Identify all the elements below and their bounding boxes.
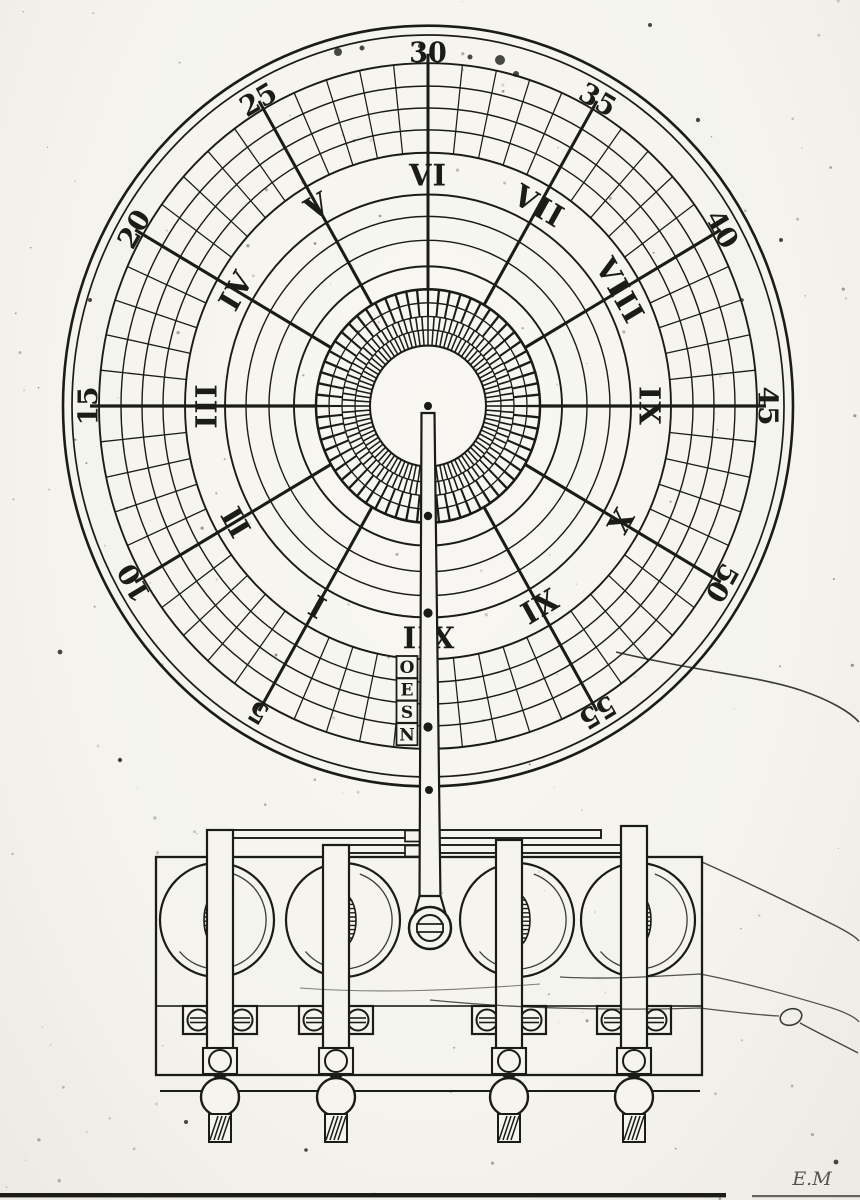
engraver-signature: E.M: [791, 1168, 832, 1190]
foot-roller: [623, 1050, 645, 1072]
rod-rivet: [425, 786, 433, 794]
bracket-screw: [304, 1010, 325, 1031]
hour-label-IV: IV: [211, 264, 260, 316]
pointer-letter-boxes: OESN: [397, 656, 418, 745]
ball-weight: [317, 1078, 355, 1116]
ball-weight: [201, 1078, 239, 1116]
vertical-bar: [323, 845, 349, 1052]
bracket-screw: [477, 1010, 498, 1031]
rod-letter-S: S: [401, 703, 413, 723]
bracket-screw: [521, 1010, 542, 1031]
ball-stub: [325, 1114, 347, 1142]
foot-roller: [209, 1050, 231, 1072]
bracket-screw: [232, 1010, 253, 1031]
crease-line: [800, 1023, 858, 1053]
rod-rivet: [424, 512, 432, 520]
vertical-bar: [496, 840, 522, 1052]
rod-clamp-upper: [405, 831, 421, 842]
bracket-screw: [188, 1010, 209, 1031]
hour-label-VI: VI: [408, 157, 447, 193]
ball-stub: [623, 1114, 645, 1142]
scanned-plate-page: 0510152025303540455055XIIIIIIIIIVVVIVIIV…: [0, 0, 860, 1200]
minute-label-20: 20: [111, 204, 158, 255]
minute-label-45: 45: [751, 386, 783, 425]
ball-weight: [615, 1078, 653, 1116]
hour-label-IX: IX: [633, 386, 667, 426]
column-4: [597, 826, 671, 1142]
minute-label-40: 40: [699, 204, 746, 255]
bracket-screw: [602, 1010, 623, 1031]
hour-label-XI: XI: [514, 581, 564, 632]
foot-roller: [498, 1050, 520, 1072]
rod-eye-screw-slot: [417, 924, 443, 932]
ball-weight: [490, 1078, 528, 1116]
foot-roller: [325, 1050, 347, 1072]
vertical-bar: [207, 830, 233, 1052]
ball-stub: [498, 1114, 520, 1142]
minute-label-55: 55: [573, 688, 622, 737]
rod-rivet: [423, 722, 432, 731]
minute-label-10: 10: [111, 558, 158, 609]
crease-line: [616, 652, 859, 722]
column-1: [183, 830, 257, 1142]
hour-label-VII: VII: [507, 176, 571, 235]
rod-rivet: [423, 608, 432, 617]
bracket-screw: [646, 1010, 667, 1031]
crease-loop: [778, 1006, 804, 1028]
column-3: [472, 840, 546, 1142]
plate-bottom-rule: [0, 1193, 726, 1197]
vertical-bar: [621, 826, 647, 1052]
hour-label-I: I: [302, 587, 332, 626]
minute-label-15: 15: [72, 386, 104, 425]
minute-label-5: 5: [242, 693, 274, 732]
rod-shaft: [420, 413, 441, 900]
rod-letter-O: O: [400, 658, 415, 678]
minute-label-50: 50: [699, 558, 746, 609]
dial-center-dot: [424, 402, 432, 410]
rod-letter-E: E: [401, 681, 414, 701]
minute-label-25: 25: [234, 75, 283, 124]
plate-bottom-rule-right: [752, 1195, 860, 1197]
bracket-screw: [348, 1010, 369, 1031]
lower-rail: [336, 845, 641, 853]
plate-footer: E.M: [0, 1168, 860, 1197]
ball-stub: [209, 1114, 231, 1142]
crease-line: [702, 862, 859, 941]
column-2: [299, 845, 373, 1142]
minute-label-35: 35: [573, 75, 622, 124]
engraving-canvas: 0510152025303540455055XIIIIIIIIIVVVIVIIV…: [0, 0, 860, 1200]
rod-letter-N: N: [399, 725, 415, 745]
hour-label-III: III: [189, 383, 223, 429]
minute-label-30: 30: [409, 35, 447, 69]
